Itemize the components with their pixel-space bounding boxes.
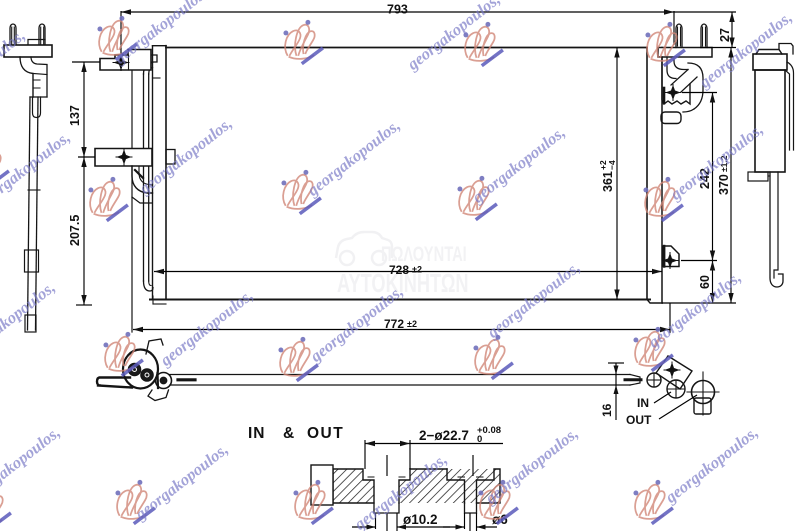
svg-text:ø10.2: ø10.2: [403, 512, 438, 527]
svg-text:2−ø22.7: 2−ø22.7: [419, 428, 469, 443]
svg-text:IN: IN: [248, 425, 266, 442]
svg-text:361: 361: [601, 171, 615, 192]
svg-text:728: 728: [389, 263, 409, 277]
svg-text:370: 370: [717, 174, 731, 195]
svg-text:OUT: OUT: [626, 413, 652, 427]
svg-text:27: 27: [718, 28, 732, 42]
svg-text:±2: ±2: [407, 319, 417, 329]
svg-text:OUT: OUT: [307, 425, 344, 442]
svg-text:793: 793: [387, 3, 408, 17]
svg-text:772: 772: [384, 317, 404, 331]
svg-text:0: 0: [477, 434, 482, 445]
svg-text:137: 137: [68, 105, 82, 126]
svg-text:IN: IN: [637, 396, 649, 410]
svg-text:±2: ±2: [412, 265, 422, 275]
svg-text:−4: −4: [607, 160, 617, 170]
svg-text:207.5: 207.5: [68, 215, 82, 246]
svg-text:16: 16: [600, 403, 614, 417]
svg-text:&: &: [283, 425, 294, 442]
